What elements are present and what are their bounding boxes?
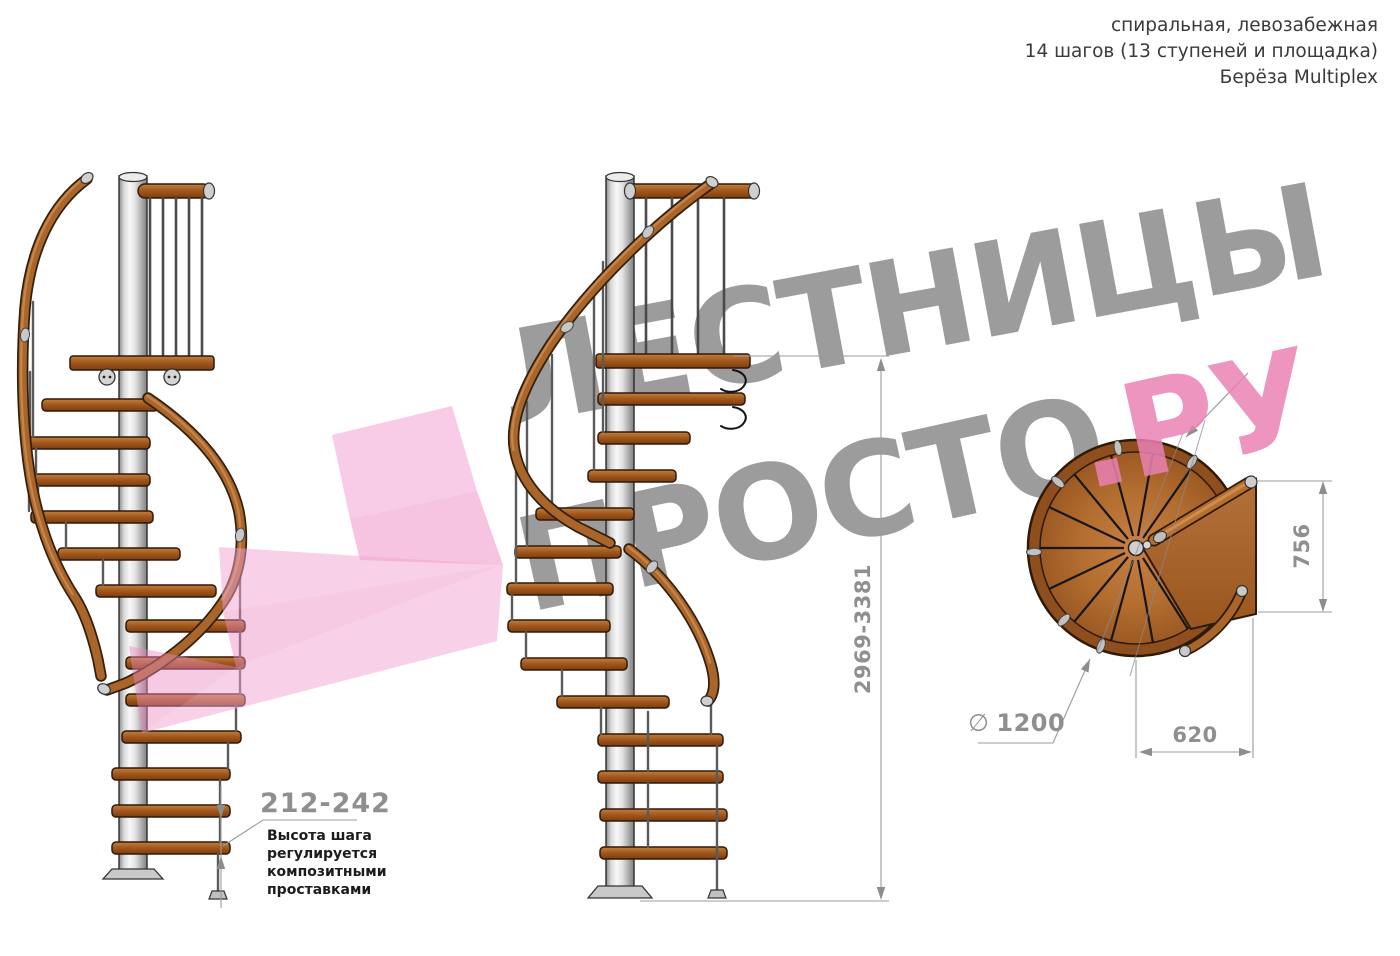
center-pole-base [588, 886, 652, 898]
left-top-rail [138, 184, 210, 198]
left-pole-base [103, 869, 163, 879]
left-top-balusters [150, 198, 202, 356]
left-elevation-view [20, 170, 246, 899]
center-elevation-view [507, 173, 760, 899]
drawing-canvas: ЛЕСТНИЦЫ ПРОСТО [0, 0, 1400, 956]
